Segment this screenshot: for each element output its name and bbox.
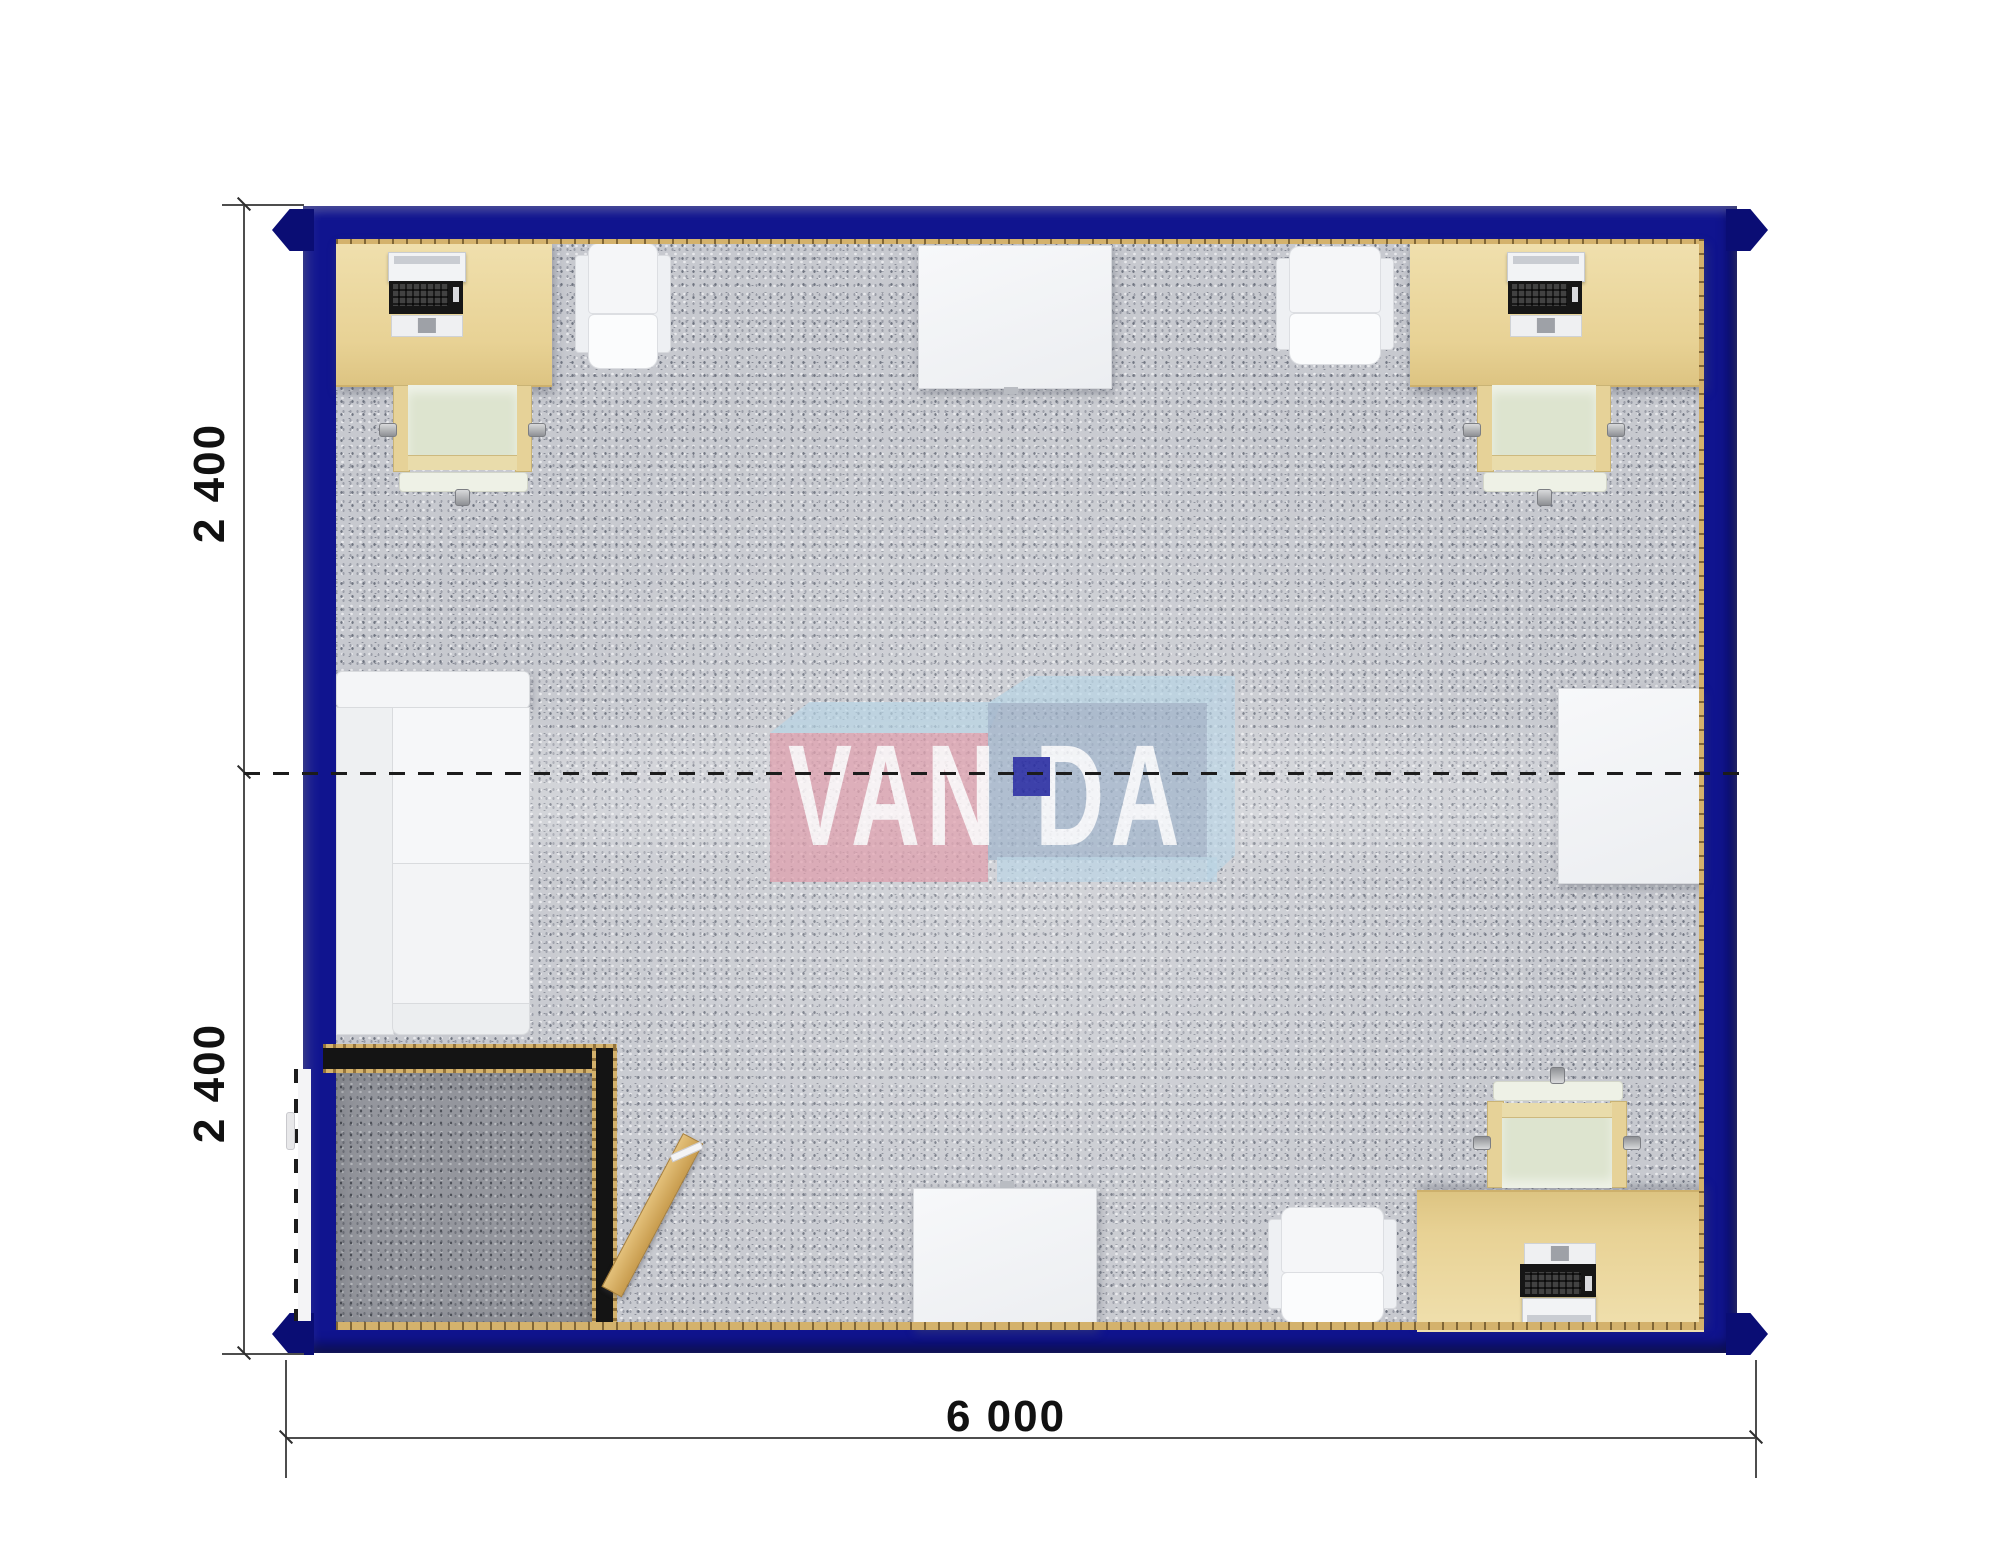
office-chair-top-left [393, 385, 532, 505]
wall-seal-top [336, 239, 1704, 244]
exterior-door-seal [294, 1069, 298, 1321]
table-bottom-center [913, 1188, 1097, 1329]
dimension-extension [1755, 1360, 1757, 1478]
vestibule-trim [323, 1069, 617, 1073]
computer-case-top-right [1510, 315, 1582, 337]
wall-seal-right [1699, 239, 1704, 1330]
exterior-door-panel [297, 1069, 311, 1321]
computer-case-bottom-right [1524, 1243, 1596, 1265]
dimension-label-2400-upper: 2 400 [185, 413, 235, 553]
vestibule-floor [336, 1069, 592, 1330]
dimension-label-2400-lower: 2 400 [185, 1013, 235, 1153]
dimension-label-6000: 6 000 [936, 1392, 1076, 1442]
office-chair-bottom-right [1487, 1068, 1627, 1188]
chair-caster [1607, 423, 1625, 437]
floor-plan-render: VAN DA [0, 0, 2000, 1561]
office-chair-top-right [1477, 385, 1611, 505]
dimension-line-left [243, 204, 245, 1354]
watermark-text-van: VAN [788, 715, 1002, 880]
computer-keyboard-bottom-right [1520, 1264, 1596, 1297]
corner-casting-top-right [1726, 209, 1768, 251]
watermark-center-square [1013, 757, 1050, 796]
wall-seal-bottom [336, 1322, 1704, 1330]
table-top-center-leg [1004, 387, 1018, 394]
chair-caster [1537, 489, 1552, 506]
sofa-backrest [336, 707, 394, 1035]
sofa-cushion [392, 863, 530, 1005]
sofa-cushion [392, 707, 530, 865]
computer-monitor-top-left [388, 252, 466, 282]
vestibule-wall-top [323, 1048, 617, 1069]
exterior-door-handle [286, 1112, 295, 1150]
dimension-extension [285, 1360, 287, 1478]
table-right [1558, 688, 1702, 884]
table-top-center [918, 245, 1112, 389]
corner-casting-bottom-right [1726, 1313, 1768, 1355]
watermark-blue-top-face [988, 676, 1235, 703]
armchair-top-right [1276, 246, 1394, 365]
chair-caster [1473, 1136, 1491, 1150]
vestibule-trim [323, 1044, 617, 1048]
chair-caster [1550, 1067, 1565, 1084]
chair-caster [379, 423, 397, 437]
armchair-top-left [575, 243, 671, 369]
table-bottom-center-leg [1000, 1181, 1014, 1188]
computer-keyboard-top-right [1508, 281, 1582, 314]
dimension-extension [222, 204, 304, 206]
computer-monitor-top-right [1507, 252, 1585, 282]
sofa-armrest [336, 671, 530, 709]
computer-keyboard-top-left [389, 281, 463, 314]
chair-caster [455, 489, 470, 506]
computer-case-top-left [391, 315, 463, 337]
watermark-text-da: DA [1035, 715, 1186, 880]
watermark-blue-right-face [1207, 676, 1235, 882]
module-joint-dashed-line [244, 772, 1750, 775]
chair-caster [1623, 1136, 1641, 1150]
sofa [336, 671, 530, 1033]
chair-caster [528, 423, 546, 437]
chair-caster [1463, 423, 1481, 437]
dimension-extension [222, 1353, 304, 1355]
armchair-bottom [1268, 1207, 1397, 1323]
sofa-front-edge [392, 1003, 530, 1035]
corner-casting-top-left [272, 209, 314, 251]
vestibule-trim [592, 1048, 596, 1330]
